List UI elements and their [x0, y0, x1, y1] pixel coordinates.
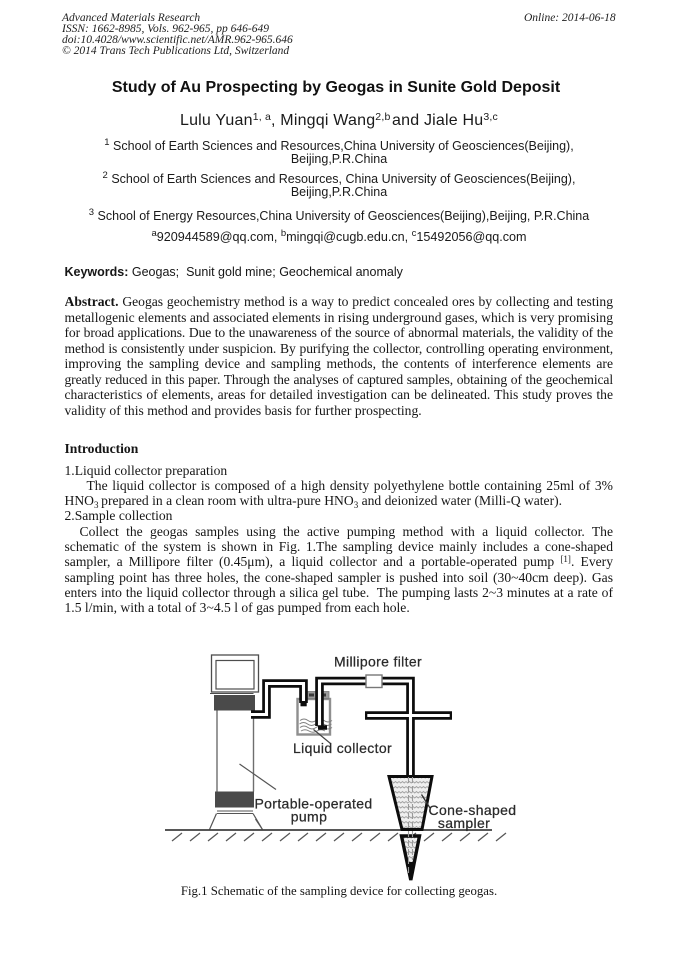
- svg-text:Liquid collector: Liquid collector: [293, 740, 392, 756]
- svg-text:sampler: sampler: [438, 815, 490, 831]
- svg-text:Millipore filter: Millipore filter: [334, 654, 422, 670]
- svg-text:pump: pump: [291, 809, 327, 825]
